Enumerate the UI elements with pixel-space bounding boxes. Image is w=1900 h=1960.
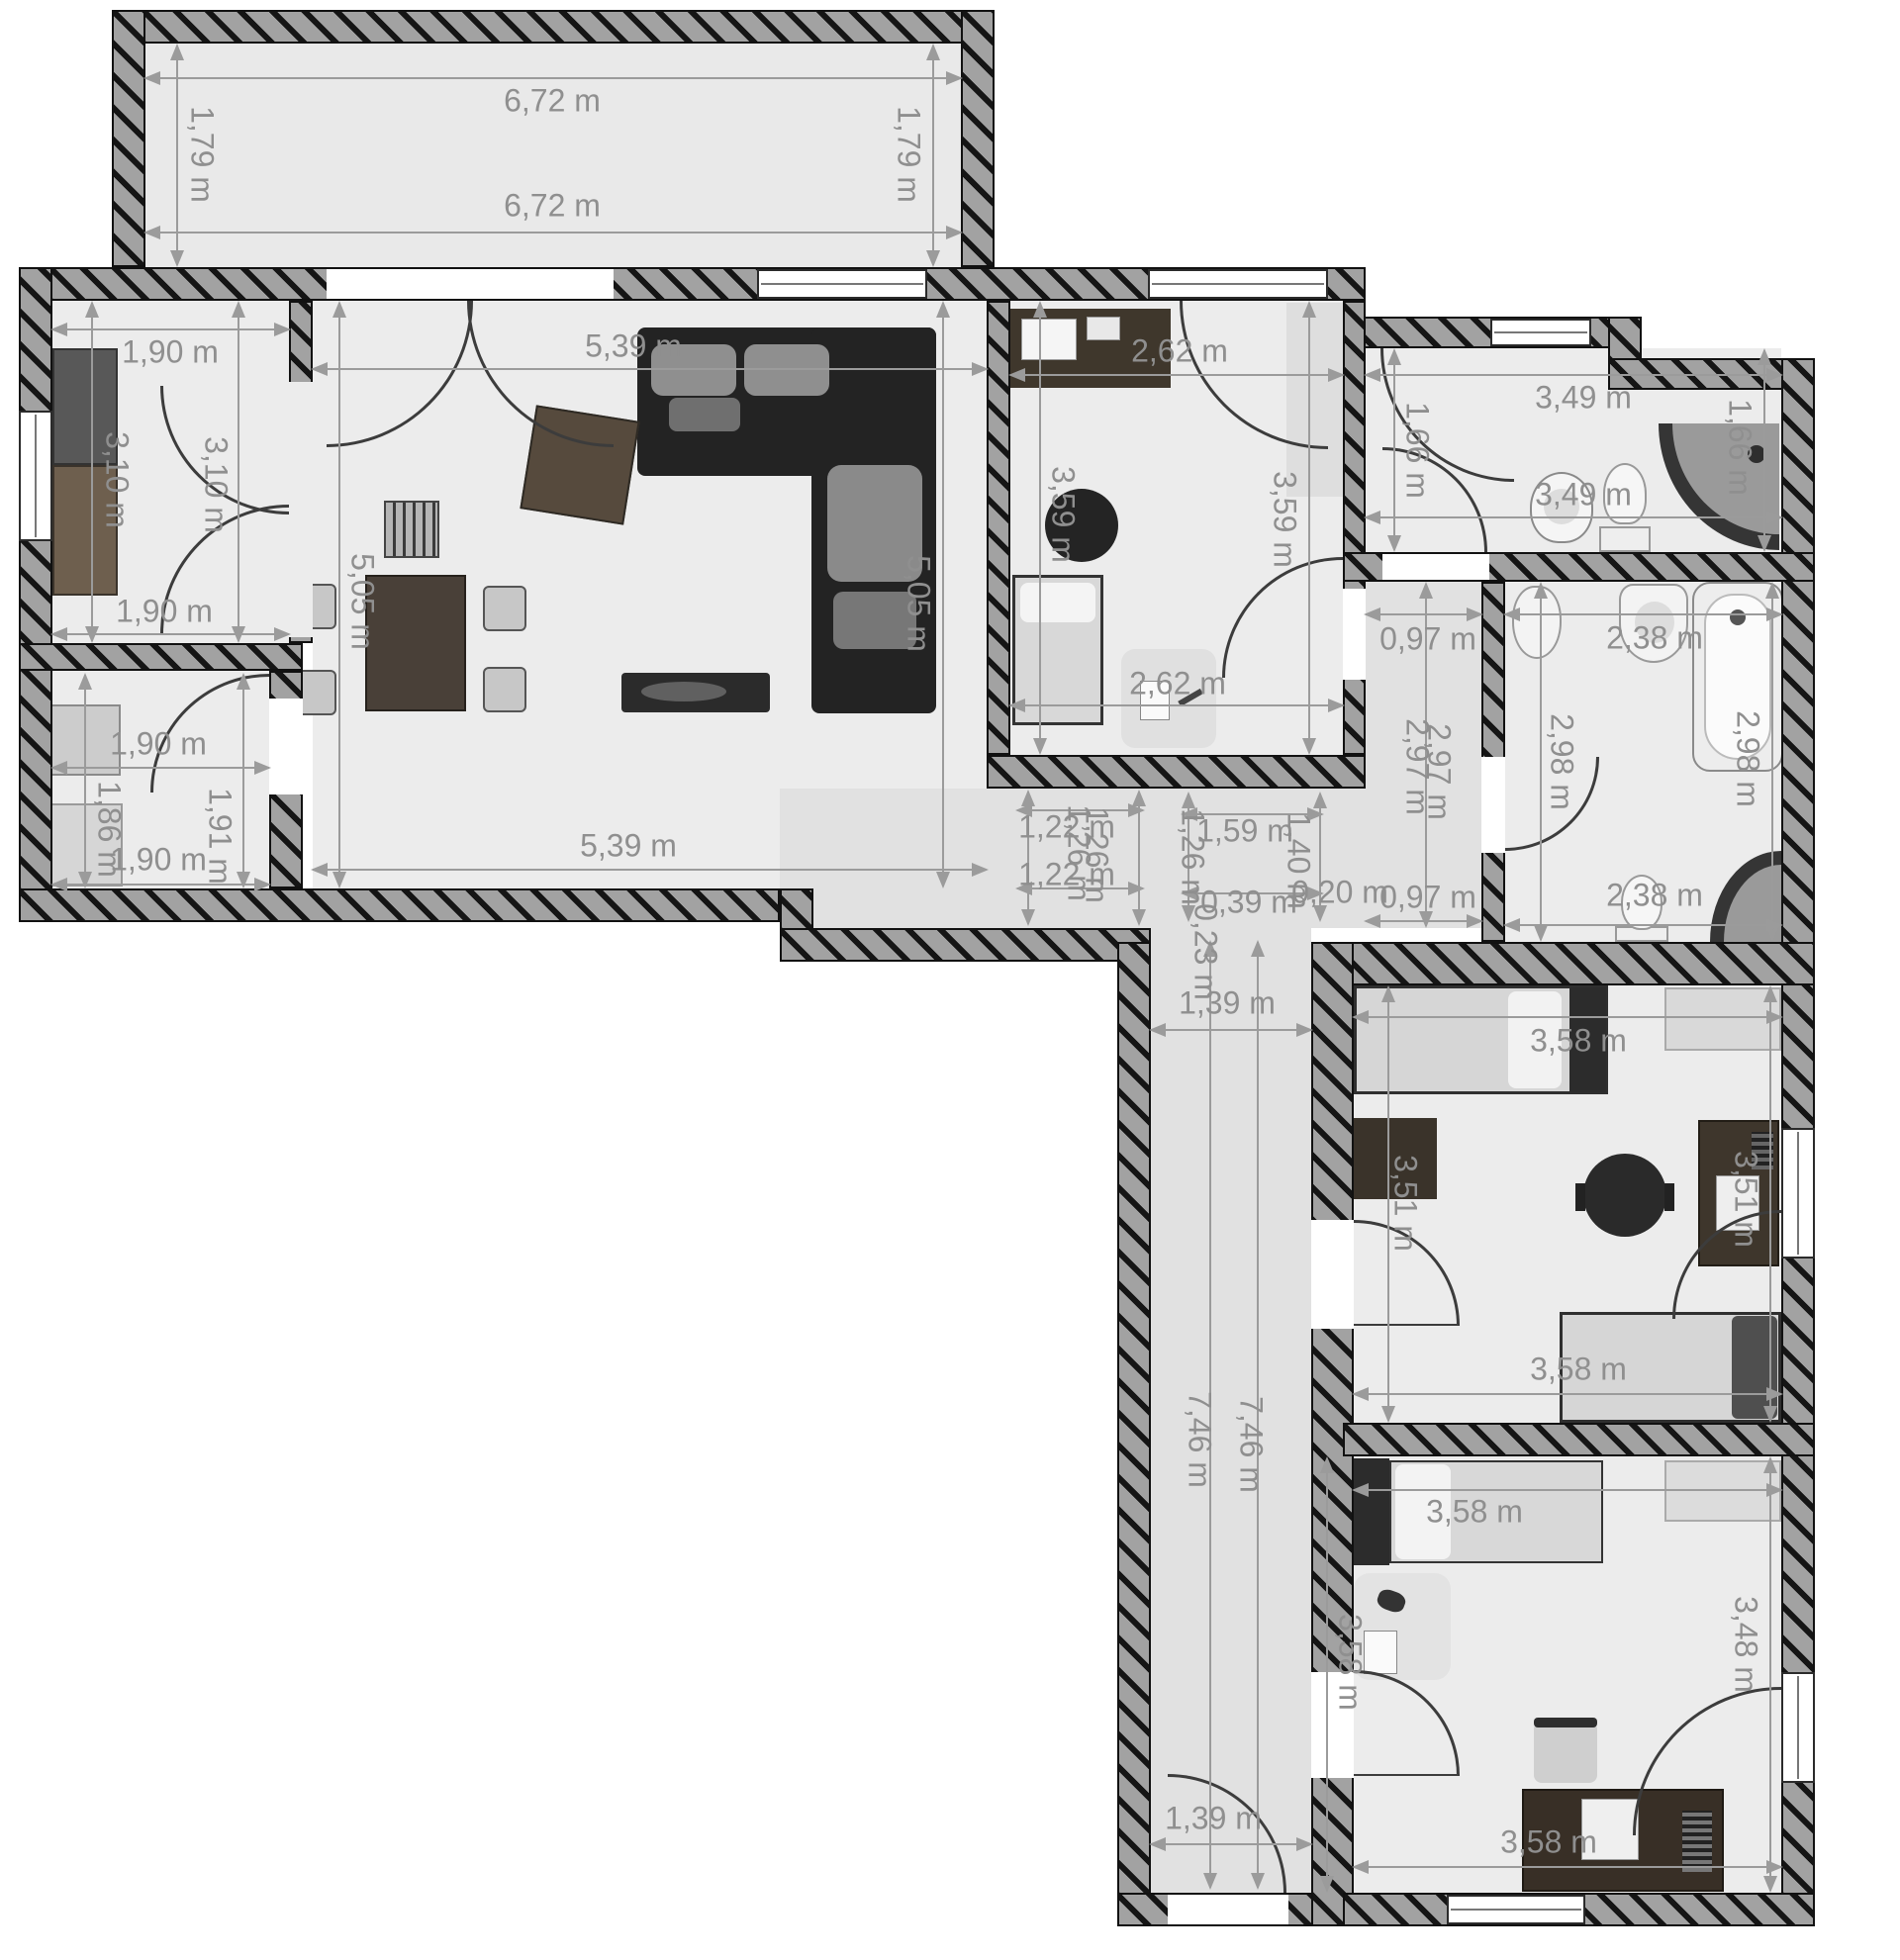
wall-hall-bottom xyxy=(780,928,1151,962)
dim-label: 1,22 m xyxy=(1018,857,1115,893)
dim-label: 3,10 m xyxy=(99,431,136,528)
dim-line xyxy=(1010,704,1343,706)
sofa-cushion xyxy=(669,398,740,431)
dim-label: 0,97 m xyxy=(1379,880,1476,916)
storage-door-opening xyxy=(269,699,303,794)
dim-line xyxy=(932,46,934,265)
dim-label: 1,91 m xyxy=(202,788,238,885)
dim-label: 3,58 m xyxy=(1500,1824,1597,1861)
wall-bedroom1-right xyxy=(1343,301,1366,755)
kitchen-window xyxy=(19,411,52,541)
wall-balcony-left xyxy=(112,10,145,267)
dim-label: 3,49 m xyxy=(1535,477,1632,513)
dim-line xyxy=(313,869,987,871)
wall-bottom-left xyxy=(19,888,780,922)
dining-chair xyxy=(483,586,526,631)
corridor-door-opening xyxy=(1168,1895,1288,1924)
dim-line xyxy=(1769,1458,1771,1891)
dim-line xyxy=(1354,1016,1781,1018)
bedroom2-door-opening xyxy=(1311,1220,1354,1329)
dim-line xyxy=(1366,920,1481,922)
dim-label: 3,48 m xyxy=(1728,1596,1764,1693)
dim-label: 2,62 m xyxy=(1131,333,1228,370)
dim-label: 2,98 m xyxy=(1730,710,1766,807)
dim-label: 6,72 m xyxy=(504,188,601,225)
dim-label: 3,58 m xyxy=(1530,1023,1627,1060)
dim-label: 3,51 m xyxy=(1728,1151,1764,1248)
dim-label: 1,79 m xyxy=(184,106,221,203)
dim-label: 1,66 m xyxy=(1722,399,1758,496)
office-chair-arm xyxy=(1575,1183,1585,1211)
dim-line xyxy=(942,303,944,887)
dim-label: 2,62 m xyxy=(1129,666,1226,702)
book xyxy=(1364,1631,1397,1674)
wall-bath-bottom xyxy=(1343,942,1815,985)
wall-living-bedroom1 xyxy=(987,301,1010,755)
dim-line xyxy=(1354,1866,1781,1868)
dim-line xyxy=(1308,303,1310,753)
wall-kitchen-bottom xyxy=(19,643,303,671)
dim-label: 3,59 m xyxy=(1045,466,1082,563)
dim-label: 1,39 m xyxy=(1165,1801,1262,1837)
dining-chair xyxy=(483,667,526,712)
armchair xyxy=(384,501,439,558)
dim-label: 5,39 m xyxy=(585,328,682,365)
bed-pillow xyxy=(1020,583,1095,622)
bathroom-door-opening xyxy=(1481,757,1505,853)
dim-line xyxy=(145,77,961,79)
dim-label: 3,58 m xyxy=(1530,1352,1627,1388)
dim-label: 3,58 m xyxy=(1426,1494,1523,1531)
dim-line xyxy=(338,303,340,887)
wall-bedroom1-bottom xyxy=(987,755,1366,789)
dim-line xyxy=(1354,1393,1781,1395)
dim-label: 3,58 m xyxy=(1332,1614,1369,1711)
bedroom3-door-leaf xyxy=(1354,1774,1460,1776)
dim-label: 5,39 m xyxy=(580,828,677,865)
bed-headboard xyxy=(1354,1458,1389,1565)
floor-plan: 6,72 m 1,79 m 1,79 m 6,72 m 1,90 m 3,10 … xyxy=(0,0,1900,1960)
dim-line xyxy=(1763,350,1765,550)
wall-bedroom2-bedroom3 xyxy=(1343,1423,1815,1456)
dim-label: 0,20 m xyxy=(1291,875,1388,911)
desk-papers xyxy=(1087,317,1120,340)
dim-line xyxy=(1540,584,1542,940)
dim-line xyxy=(1151,1029,1311,1031)
desk-papers xyxy=(1021,319,1077,360)
tv xyxy=(641,682,726,701)
toilet-tank xyxy=(1599,526,1651,552)
wc-window xyxy=(1490,319,1591,346)
dim-line xyxy=(145,232,961,233)
office-chair-arm xyxy=(1664,1183,1674,1211)
bedroom2-window xyxy=(1781,1128,1815,1259)
dim-label: 1,59 m xyxy=(1196,813,1293,850)
dim-line xyxy=(242,675,244,887)
dim-line xyxy=(1151,1843,1311,1845)
dim-label: 1,79 m xyxy=(891,106,927,203)
stool-back xyxy=(1534,1718,1597,1727)
dim-line xyxy=(1039,303,1041,753)
dim-line xyxy=(1138,792,1140,924)
dim-line xyxy=(52,633,289,635)
dim-label: 6,72 m xyxy=(504,83,601,120)
dim-line xyxy=(1366,516,1781,518)
dim-line xyxy=(176,46,178,265)
bedroom3-window xyxy=(1781,1672,1815,1783)
dim-label: 2,98 m xyxy=(1544,713,1580,810)
dim-label: 5,05 m xyxy=(344,553,381,650)
dim-label: 2,97 m xyxy=(1421,723,1458,820)
stool xyxy=(1534,1722,1597,1783)
dim-line xyxy=(1393,350,1395,550)
balcony-door-opening xyxy=(327,269,614,299)
dim-label: 0,97 m xyxy=(1379,621,1476,658)
dim-label: 7,46 m xyxy=(1233,1396,1270,1493)
dim-label: 2,38 m xyxy=(1606,878,1703,914)
wall-balcony-top xyxy=(112,10,995,44)
dim-label: 1,39 m xyxy=(1179,985,1276,1022)
wall-balcony-right xyxy=(961,10,995,267)
bathtub-drain xyxy=(1730,609,1746,625)
bedroom2-door-leaf xyxy=(1354,1324,1460,1326)
dim-label: 7,46 m xyxy=(1182,1391,1218,1488)
wall-left-exterior xyxy=(19,267,52,922)
dim-label: 2,38 m xyxy=(1606,620,1703,657)
living-window xyxy=(757,269,927,299)
sofa-cushion xyxy=(744,344,829,396)
dim-label: 5,05 m xyxy=(901,555,937,652)
dim-label: 1,90 m xyxy=(110,726,207,763)
dim-line xyxy=(91,303,93,641)
dim-line xyxy=(1354,1489,1781,1491)
kitchen-door-opening xyxy=(289,382,313,637)
dim-line xyxy=(1010,374,1343,376)
dim-line xyxy=(1366,613,1481,615)
dim-line xyxy=(1769,987,1771,1421)
bedroom1-window xyxy=(1148,269,1328,299)
dim-line xyxy=(84,675,86,887)
dim-line xyxy=(1771,584,1773,940)
dim-label: 1,66 m xyxy=(1399,402,1436,499)
dim-label: 1,90 m xyxy=(116,594,213,630)
office-chair xyxy=(1583,1154,1666,1237)
dim-line xyxy=(1505,924,1781,926)
wc-door-opening xyxy=(1382,554,1489,580)
dim-line xyxy=(1505,613,1781,615)
dim-label: 3,49 m xyxy=(1535,380,1632,417)
bedroom1-door-opening xyxy=(1343,589,1366,680)
dim-line xyxy=(52,328,289,330)
dim-label: 3,59 m xyxy=(1267,471,1303,568)
dim-label: 3,51 m xyxy=(1387,1155,1424,1252)
dim-label: 1,90 m xyxy=(122,334,219,371)
dim-line xyxy=(1326,1458,1328,1891)
dim-label: 1,90 m xyxy=(110,842,207,879)
dim-line xyxy=(237,303,239,641)
wall-corridor-left xyxy=(1117,942,1151,1926)
dim-line xyxy=(1366,374,1781,376)
dim-line xyxy=(313,368,987,370)
dim-label: 3,10 m xyxy=(198,436,235,533)
long-corridor-floor xyxy=(1151,928,1311,1893)
bedroom3-bottom-window xyxy=(1447,1895,1585,1924)
